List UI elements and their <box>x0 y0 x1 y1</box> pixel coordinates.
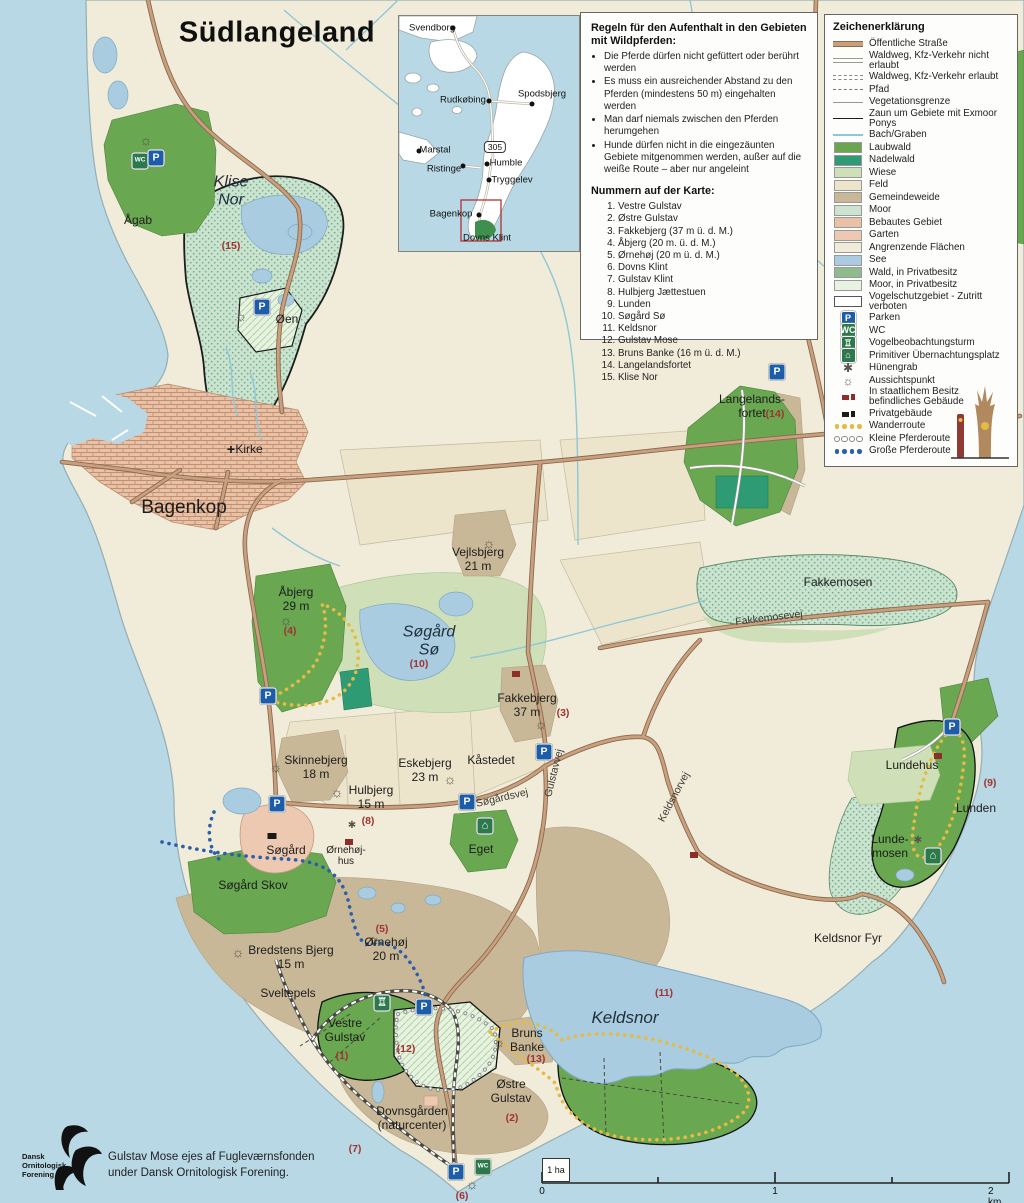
inset-town-label: Humble <box>490 158 523 169</box>
inset-town-label: Bagenkop <box>430 209 473 220</box>
map-label: Bredstens Bjerg 15 m <box>248 944 333 972</box>
parking-icon: P <box>448 1164 465 1181</box>
parking-icon: P <box>269 796 286 813</box>
viewpoint-icon: ☼ <box>270 760 283 774</box>
legend-label: Vogelbeobachtungsturm <box>869 338 975 348</box>
legend-item: Bach/Graben <box>833 129 1009 142</box>
route-dot <box>842 449 847 454</box>
legend-label: Wald, in Privatbesitz <box>869 268 957 278</box>
building-swatch <box>851 394 855 400</box>
map-label: Søgård <box>266 844 305 858</box>
inset-town-dot <box>477 213 482 218</box>
legend-fill-swatch <box>834 230 862 241</box>
inset-town-dot <box>487 99 492 104</box>
legend-swatch <box>833 392 863 403</box>
legend-item: Wald, in Privatbesitz <box>833 267 1009 280</box>
legend-label: WC <box>869 326 885 336</box>
inset-town-dot <box>530 102 535 107</box>
legend-swatch <box>833 255 863 266</box>
legend-item: Bebautes Gebiet <box>833 217 1009 230</box>
legend-item: Feld <box>833 179 1009 192</box>
legend-item: Vogelschutzgebiet - Zutritt verboten <box>833 292 1009 313</box>
route-badge: 305 <box>484 141 506 153</box>
legend-swatch: ☼ <box>833 375 863 386</box>
legend: Zeichenerklärung Öffentliche StraßeWaldw… <box>824 14 1018 467</box>
legend-item: Vegetationsgrenze <box>833 96 1009 109</box>
legend-fill-swatch <box>834 242 862 253</box>
lundehus-wiese <box>848 745 940 805</box>
map-number-item: Åbjerg (20 m. ü. d. M.) <box>618 238 807 250</box>
map-label: (6) <box>456 1190 469 1202</box>
map-number-item: Bruns Banke (16 m ü. d. M.) <box>618 348 807 360</box>
legend-fill-swatch <box>834 255 862 266</box>
legend-label: Pfad <box>869 85 889 95</box>
tower-icon: ♖ <box>374 995 391 1012</box>
inset-town-label: Spodsbjerg <box>518 89 566 100</box>
legend-fill-swatch <box>834 280 862 291</box>
map-label: Øen <box>276 313 299 327</box>
legend-label: Hünengrab <box>869 363 917 373</box>
legend-label: See <box>869 255 886 265</box>
map-label: (13) <box>527 1053 546 1065</box>
parking-icon: P <box>148 150 165 167</box>
map-number-item: Fakkebjerg (37 m ü. d. M.) <box>618 226 807 238</box>
legend-swatch <box>833 72 863 83</box>
map-label: Skinnebjerg 18 m <box>284 754 347 782</box>
private-building-icon <box>268 833 277 839</box>
legend-fill-swatch <box>834 296 862 307</box>
viewpoint-icon: ☼ <box>232 945 245 959</box>
legend-item: ⌂Primitiver Übernachtungsplatz <box>833 350 1009 363</box>
legend-swatch <box>833 97 863 108</box>
legend-swatch <box>833 434 863 445</box>
map-label: Lunden <box>956 802 996 816</box>
legend-swatch: ♖ <box>833 338 863 349</box>
legend-swatch <box>833 39 863 50</box>
map-label: (9) <box>984 777 997 789</box>
route-dot <box>850 437 855 442</box>
route-dot <box>850 449 855 454</box>
legend-item: Wiese <box>833 167 1009 180</box>
legend-label: Wanderroute <box>869 421 925 431</box>
legend-item: Waldweg, Kfz-Verkehr nicht erlaubt <box>833 51 1009 72</box>
map-label: (1) <box>336 1050 349 1062</box>
map-label: Østre Gulstav <box>491 1078 532 1106</box>
numbers-list: Vestre GulstavØstre GulstavFakkebjerg (3… <box>591 201 807 384</box>
inset-geography <box>399 16 577 249</box>
legend-swatch <box>833 55 863 66</box>
scale-0: 0 <box>539 1186 545 1197</box>
map-label: Vejlsbjerg 21 m <box>452 546 504 574</box>
map-number-item: Gulstav Klint <box>618 274 807 286</box>
map-label: (15) <box>222 240 241 252</box>
viewpoint-icon: ☼ <box>140 133 153 147</box>
legend-label: Nadelwald <box>869 155 915 165</box>
route-dot <box>857 437 862 442</box>
legend-fill-swatch <box>834 180 862 191</box>
rules-bullet: Hunde dürfen nicht in die eingezäunten G… <box>604 140 807 177</box>
legend-item: ♖Vogelbeobachtungsturm <box>833 337 1009 350</box>
legend-bach-swatch <box>833 134 863 136</box>
map-label: (12) <box>397 1043 416 1055</box>
legend-label: Feld <box>869 180 888 190</box>
map-number-item: Ørnehøj (20 m ü. d. M.) <box>618 250 807 262</box>
viewpoint-icon: ☼ <box>843 375 854 387</box>
legend-label: Parken <box>869 313 900 323</box>
building-swatch <box>842 412 849 417</box>
map-label: Bruns Banke <box>510 1027 544 1055</box>
legend-swatch <box>833 205 863 216</box>
church-icon: + <box>227 442 235 456</box>
legend-label: Garten <box>869 230 899 240</box>
map-label: Keldsnor <box>591 1008 658 1028</box>
viewpoint-icon: ☼ <box>331 785 344 799</box>
legend-waldk-swatch <box>833 75 863 80</box>
scale-2km: 2 km <box>988 1186 1008 1203</box>
parking-icon: P <box>254 299 271 316</box>
route-dot <box>857 449 862 454</box>
legend-swatch <box>833 409 863 420</box>
legend-item: Öffentliche Straße <box>833 38 1009 51</box>
map-number-item: Østre Gulstav <box>618 213 807 225</box>
legend-swatch <box>833 296 863 307</box>
building-swatch <box>842 395 849 400</box>
legend-item: Moor, in Privatbesitz <box>833 279 1009 292</box>
legend-label: Gemeindeweide <box>869 193 940 203</box>
viewpoint-icon: ☼ <box>493 1035 506 1049</box>
legend-item: PParken <box>833 312 1009 325</box>
map-number-item: Søgård Sø <box>618 311 807 323</box>
legend-swatch <box>833 113 863 124</box>
legend-swatch <box>833 142 863 153</box>
map-number-item: Dovns Klint <box>618 262 807 274</box>
map-label: Sveltepels <box>260 987 315 1001</box>
legend-label: Zaun um Gebiete mit Exmoor Ponys <box>869 109 1009 130</box>
map-label: (4) <box>284 625 297 637</box>
route-dot <box>842 437 847 442</box>
legend-swatch: WC <box>833 325 863 336</box>
parking-icon: P <box>260 688 277 705</box>
parking-icon: P <box>536 744 553 761</box>
shelter-icon: ⌂ <box>477 818 494 835</box>
rules-bullet: Man darf niemals zwischen den Pferden he… <box>604 114 807 138</box>
inset-map: SvendborgRudkøbingSpodsbjergMarstalRisti… <box>398 15 580 252</box>
legend-veg-swatch <box>833 102 863 103</box>
legend-fill-swatch <box>834 167 862 178</box>
route-dot <box>835 437 840 442</box>
legend-label: Aussichtspunkt <box>869 376 935 386</box>
map-label: Lundehus <box>886 759 939 773</box>
rules-heading: Regeln für den Aufenthalt in den Gebiete… <box>591 22 807 48</box>
hectare-box: 1 ha <box>542 1158 570 1182</box>
page-title: Südlangeland <box>179 16 375 49</box>
legend-item: Waldweg, Kfz-Verkehr erlaubt <box>833 71 1009 84</box>
legend-fill-swatch <box>834 205 862 216</box>
map-label: (8) <box>362 815 375 827</box>
parking-icon: P <box>416 999 433 1016</box>
legend-item: Nadelwald <box>833 154 1009 167</box>
legend-swatch <box>833 130 863 141</box>
legend-label: Öffentliche Straße <box>869 39 948 49</box>
viewpoint-icon: ☼ <box>235 309 248 323</box>
scale-1: 1 <box>772 1186 778 1197</box>
map-number-item: Keldsnor <box>618 323 807 335</box>
huenengrab-icon: ✱ <box>843 362 853 374</box>
legend-item: Pfad <box>833 84 1009 97</box>
legend-label: Vegetationsgrenze <box>869 97 950 107</box>
legend-fill-swatch <box>834 142 862 153</box>
map-label: Kåstedet <box>467 754 514 768</box>
legend-item: Gemeindeweide <box>833 192 1009 205</box>
legend-wald-swatch <box>833 58 863 63</box>
legend-swatch <box>833 242 863 253</box>
route-dot <box>857 424 862 429</box>
legend-label: Waldweg, Kfz-Verkehr erlaubt <box>869 72 998 82</box>
rules-bullet: Es muss ein ausreichender Abstand zu den… <box>604 76 807 113</box>
inset-town-label: Dovns Klint <box>463 233 511 244</box>
map-number-item: Hulbjerg Jættestuen <box>618 287 807 299</box>
legend-swatch <box>833 217 863 228</box>
legend-label: Primitiver Übernachtungsplatz <box>869 351 1000 361</box>
building-swatch <box>851 411 855 417</box>
map-label: Ågab <box>124 214 152 228</box>
legend-swatch <box>833 180 863 191</box>
wc-icon: WC <box>132 153 149 170</box>
legend-zaun-swatch <box>833 118 863 119</box>
shelter-icon: ⌂ <box>925 848 942 865</box>
legend-label: Laubwald <box>869 143 911 153</box>
legend-swatch <box>833 446 863 457</box>
legend-label: Große Pferderoute <box>869 446 951 456</box>
inset-town-label: Svendborg <box>409 23 455 34</box>
numbers-heading: Nummern auf der Karte: <box>591 185 807 198</box>
map-number-item: Gulstav Mose <box>618 335 807 347</box>
legend-road-swatch <box>833 41 863 47</box>
legend-label: Wiese <box>869 168 896 178</box>
huenengrab-icon: ✱ <box>914 836 922 846</box>
route-dot <box>842 424 847 429</box>
legend-swatch <box>833 421 863 432</box>
scale-bar: 1 ha 0 1 2 km <box>536 1152 1018 1200</box>
map-label: Hulbjerg 15 m <box>349 784 394 812</box>
map-label: Åbjerg 29 m <box>279 586 314 614</box>
legend-fill-swatch <box>834 155 862 166</box>
legend-label: Angrenzende Flächen <box>869 243 965 253</box>
inset-town-label: Ristinge <box>427 164 461 175</box>
map-label: Ørnehøj 20 m <box>364 936 407 964</box>
map-label: Fakkemosen <box>804 576 873 590</box>
route-dot <box>850 424 855 429</box>
legend-label: Moor, in Privatbesitz <box>869 280 957 290</box>
map-label: (14) <box>766 408 785 420</box>
map-label: Lunde- mosen <box>871 833 908 861</box>
legend-swatch: P <box>833 313 863 324</box>
parking-icon: P <box>459 794 476 811</box>
viewpoint-icon: ☼ <box>466 1177 479 1191</box>
map-label: (11) <box>655 987 673 999</box>
rules-bullet: Die Pferde dürfen nicht gefüttert oder b… <box>604 51 807 75</box>
huenengrab-icon: ✱ <box>348 821 356 831</box>
map-label: (2) <box>506 1112 519 1124</box>
map-number-item: Langelandsfortet <box>618 360 807 372</box>
map-label: Fakkebjerg 37 m <box>497 692 556 720</box>
legend-label: Bebautes Gebiet <box>869 218 942 228</box>
legend-swatch <box>833 267 863 278</box>
legend-swatch <box>833 155 863 166</box>
legend-item: Moor <box>833 204 1009 217</box>
legend-fill-swatch <box>834 192 862 203</box>
legend-item: ✱Hünengrab <box>833 362 1009 375</box>
map-number-item: Vestre Gulstav <box>618 201 807 213</box>
map-label: (10) <box>410 658 429 670</box>
route-dot <box>835 449 840 454</box>
map-label: Klise Nor <box>214 174 249 211</box>
map-canvas: WCP☼P☼+☼☼P☼P☼☼☼✱PPP⌂☼☼P✱⌂♖P☼PWC☼ Südlang… <box>0 0 1024 1203</box>
inset-town-label: Rudkøbing <box>440 95 486 106</box>
route-dot <box>835 424 840 429</box>
map-label: (7) <box>349 1143 362 1155</box>
legend-swatch <box>833 192 863 203</box>
legend-item: Angrenzende Flächen <box>833 242 1009 255</box>
wc-icon: WC <box>475 1159 492 1176</box>
map-label: (5) <box>376 923 389 935</box>
legend-swatch: ⌂ <box>833 350 863 361</box>
legend-label: Privatgebäude <box>869 409 932 419</box>
map-number-item: Klise Nor <box>618 372 807 384</box>
dof-logo <box>48 1124 106 1190</box>
rules-box: Regeln für den Aufenthalt in den Gebiete… <box>580 12 818 340</box>
legend-item: See <box>833 254 1009 267</box>
inset-town-dot <box>461 164 466 169</box>
legend-swatch <box>833 230 863 241</box>
legend-item: WCWC <box>833 325 1009 338</box>
map-label: Søgård Skov <box>218 879 287 893</box>
route-marking-illustration <box>949 382 1011 460</box>
map-label: Søgård Sø <box>403 624 455 661</box>
map-label: Keldsnor Fyr <box>814 932 882 946</box>
parking-icon: P <box>944 719 961 736</box>
legend-label: Waldweg, Kfz-Verkehr nicht erlaubt <box>869 51 1009 72</box>
inset-town-label: Tryggelev <box>491 175 532 186</box>
legend-fill-swatch <box>834 217 862 228</box>
legend-swatch <box>833 280 863 291</box>
legend-item: Laubwald <box>833 142 1009 155</box>
rules-list: Die Pferde dürfen nicht gefüttert oder b… <box>591 51 807 176</box>
legend-label: Moor <box>869 205 891 215</box>
legend-label: Kleine Pferderoute <box>869 434 950 444</box>
legend-swatch <box>833 167 863 178</box>
state-building-icon <box>690 852 698 858</box>
legend-swatch: ✱ <box>833 363 863 374</box>
state-building-icon <box>512 671 520 677</box>
legend-heading: Zeichenerklärung <box>833 21 1009 33</box>
map-number-item: Lunden <box>618 299 807 311</box>
legend-pfad-swatch <box>833 89 863 90</box>
legend-item: Garten <box>833 229 1009 242</box>
map-label: Vestre Gulstav <box>325 1017 366 1045</box>
legend-item: Zaun um Gebiete mit Exmoor Ponys <box>833 109 1009 130</box>
map-label: Bagenkop <box>141 497 227 519</box>
map-label: Eskebjerg 23 m <box>398 757 451 785</box>
map-label: Ørnehøj- hus <box>326 845 365 867</box>
map-label: Eget <box>469 843 494 857</box>
legend-swatch <box>833 84 863 95</box>
legend-fill-swatch <box>834 267 862 278</box>
legend-label: Bach/Graben <box>869 130 927 140</box>
map-label: Kirke <box>235 443 262 457</box>
legend-label: Vogelschutzgebiet - Zutritt verboten <box>869 292 1009 313</box>
inset-town-label: Marstal <box>419 145 450 156</box>
map-label: Dovnsgården (naturcenter) <box>376 1105 447 1133</box>
credit-text: Gulstav Mose ejes af Fugleværnsfonden un… <box>108 1150 314 1181</box>
map-label: (3) <box>557 707 570 719</box>
